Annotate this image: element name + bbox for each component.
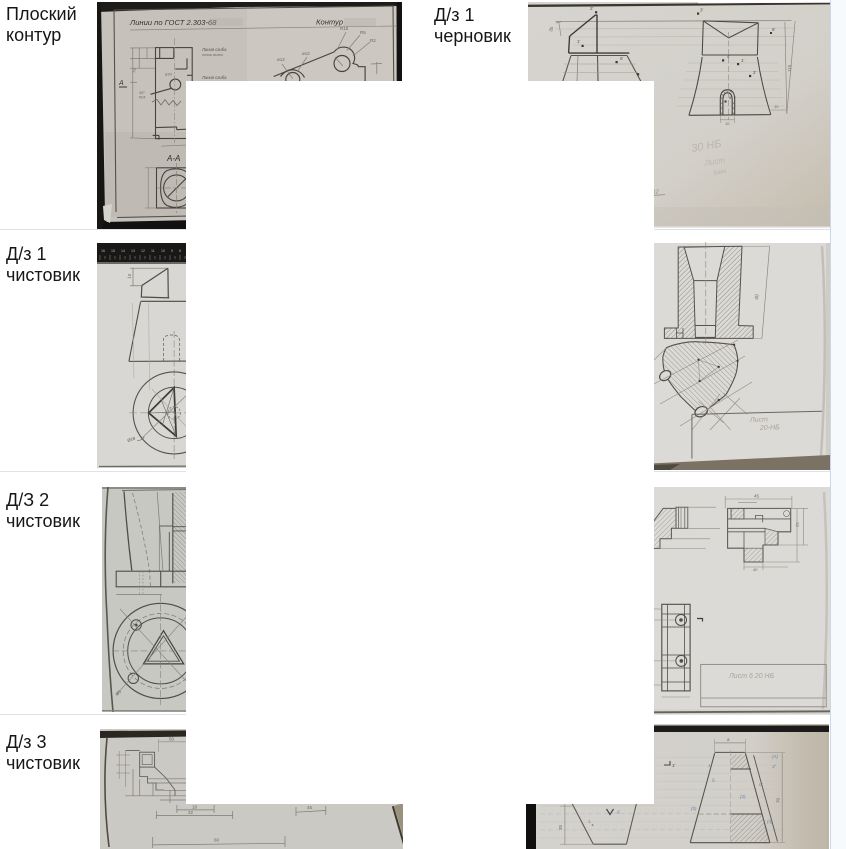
svg-text:3': 3' [700,8,704,13]
svg-text:ø20: ø20 [165,72,173,77]
svg-text:Лист: Лист [749,416,768,424]
svg-text:20-НБ: 20-НБ [759,424,780,432]
svg-text:R15: R15 [340,26,349,31]
svg-text:18: 18 [192,805,198,810]
svg-text:40: 40 [754,294,760,300]
svg-text:70: 70 [776,797,781,803]
svg-text:2': 2' [590,6,594,11]
svg-text:A-A: A-A [166,154,180,163]
svg-text:ø12: ø12 [277,57,285,62]
svg-text:(А): (А) [772,754,779,759]
svg-text:3°: 3° [772,764,777,769]
svg-text:8: 8 [179,249,181,253]
svg-text:1': 1' [672,763,676,768]
svg-text:2': 2' [753,70,757,75]
svg-text:0': 0' [759,782,763,787]
svg-text:14: 14 [121,249,125,253]
svg-text:R2: R2 [370,38,376,43]
svg-text:45: 45 [754,494,760,499]
svg-text:13: 13 [131,249,135,253]
svg-text:45: 45 [307,805,313,810]
svg-text:32: 32 [188,810,194,815]
svg-text:Линии по ГОСТ 2.303-68: Линии по ГОСТ 2.303-68 [129,18,217,27]
svg-text:1': 1' [708,763,712,768]
svg-text:40: 40 [753,567,758,572]
svg-text:60: 60 [214,838,220,843]
svg-text:10: 10 [774,104,779,109]
svg-text:10: 10 [161,249,165,253]
svg-text:11: 11 [151,249,155,253]
svg-text:16: 16 [101,249,105,253]
svg-text:(2): (2) [740,794,746,799]
svg-text:110: 110 [787,64,792,72]
svg-text:6': 6' [772,27,776,32]
svg-text:Лист 6 20 НБ: Лист 6 20 НБ [728,673,775,680]
svg-text:45°: 45° [139,90,145,95]
svg-text:A: A [118,80,124,87]
svg-text:линия жизни: линия жизни [201,53,223,57]
svg-text:Линия сгиба: Линия сгиба [201,47,227,52]
svg-text:Контур: Контур [316,18,343,27]
svg-text:1': 1' [741,58,745,63]
svg-text:8': 8' [729,95,732,100]
svg-text:10: 10 [725,121,730,126]
svg-text:35: 35 [558,824,563,830]
svg-text:(0): (0) [691,806,697,811]
svg-text:5': 5' [620,56,624,61]
svg-text:1': 1' [577,39,581,44]
svg-text:ø12: ø12 [302,51,310,56]
svg-text:Линия сгиба: Линия сгиба [201,75,227,80]
svg-text:4': 4' [727,54,731,59]
svg-text:(3): (3) [767,819,773,824]
svg-text:1.: 1. [588,819,592,824]
svg-text:б.: б. [712,778,716,783]
svg-text:15: 15 [111,249,115,253]
svg-text:R5: R5 [360,30,366,35]
svg-text:9: 9 [171,249,173,253]
svg-text:R04: R04 [139,96,145,100]
svg-text:50: 50 [169,737,175,742]
svg-text:12: 12 [141,249,145,253]
